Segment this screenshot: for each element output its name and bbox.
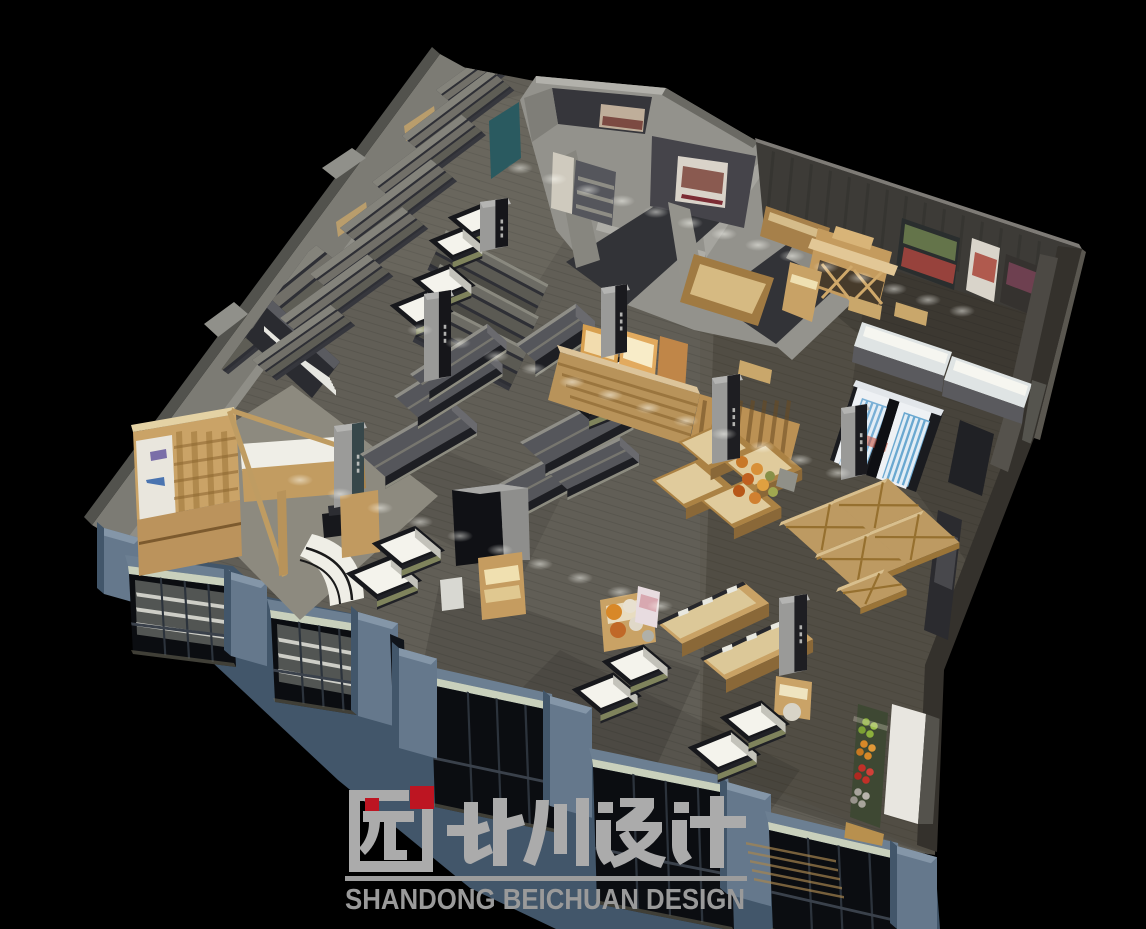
svg-text:SHANDONG BEICHUAN DESIGN: SHANDONG BEICHUAN DESIGN xyxy=(345,884,745,916)
